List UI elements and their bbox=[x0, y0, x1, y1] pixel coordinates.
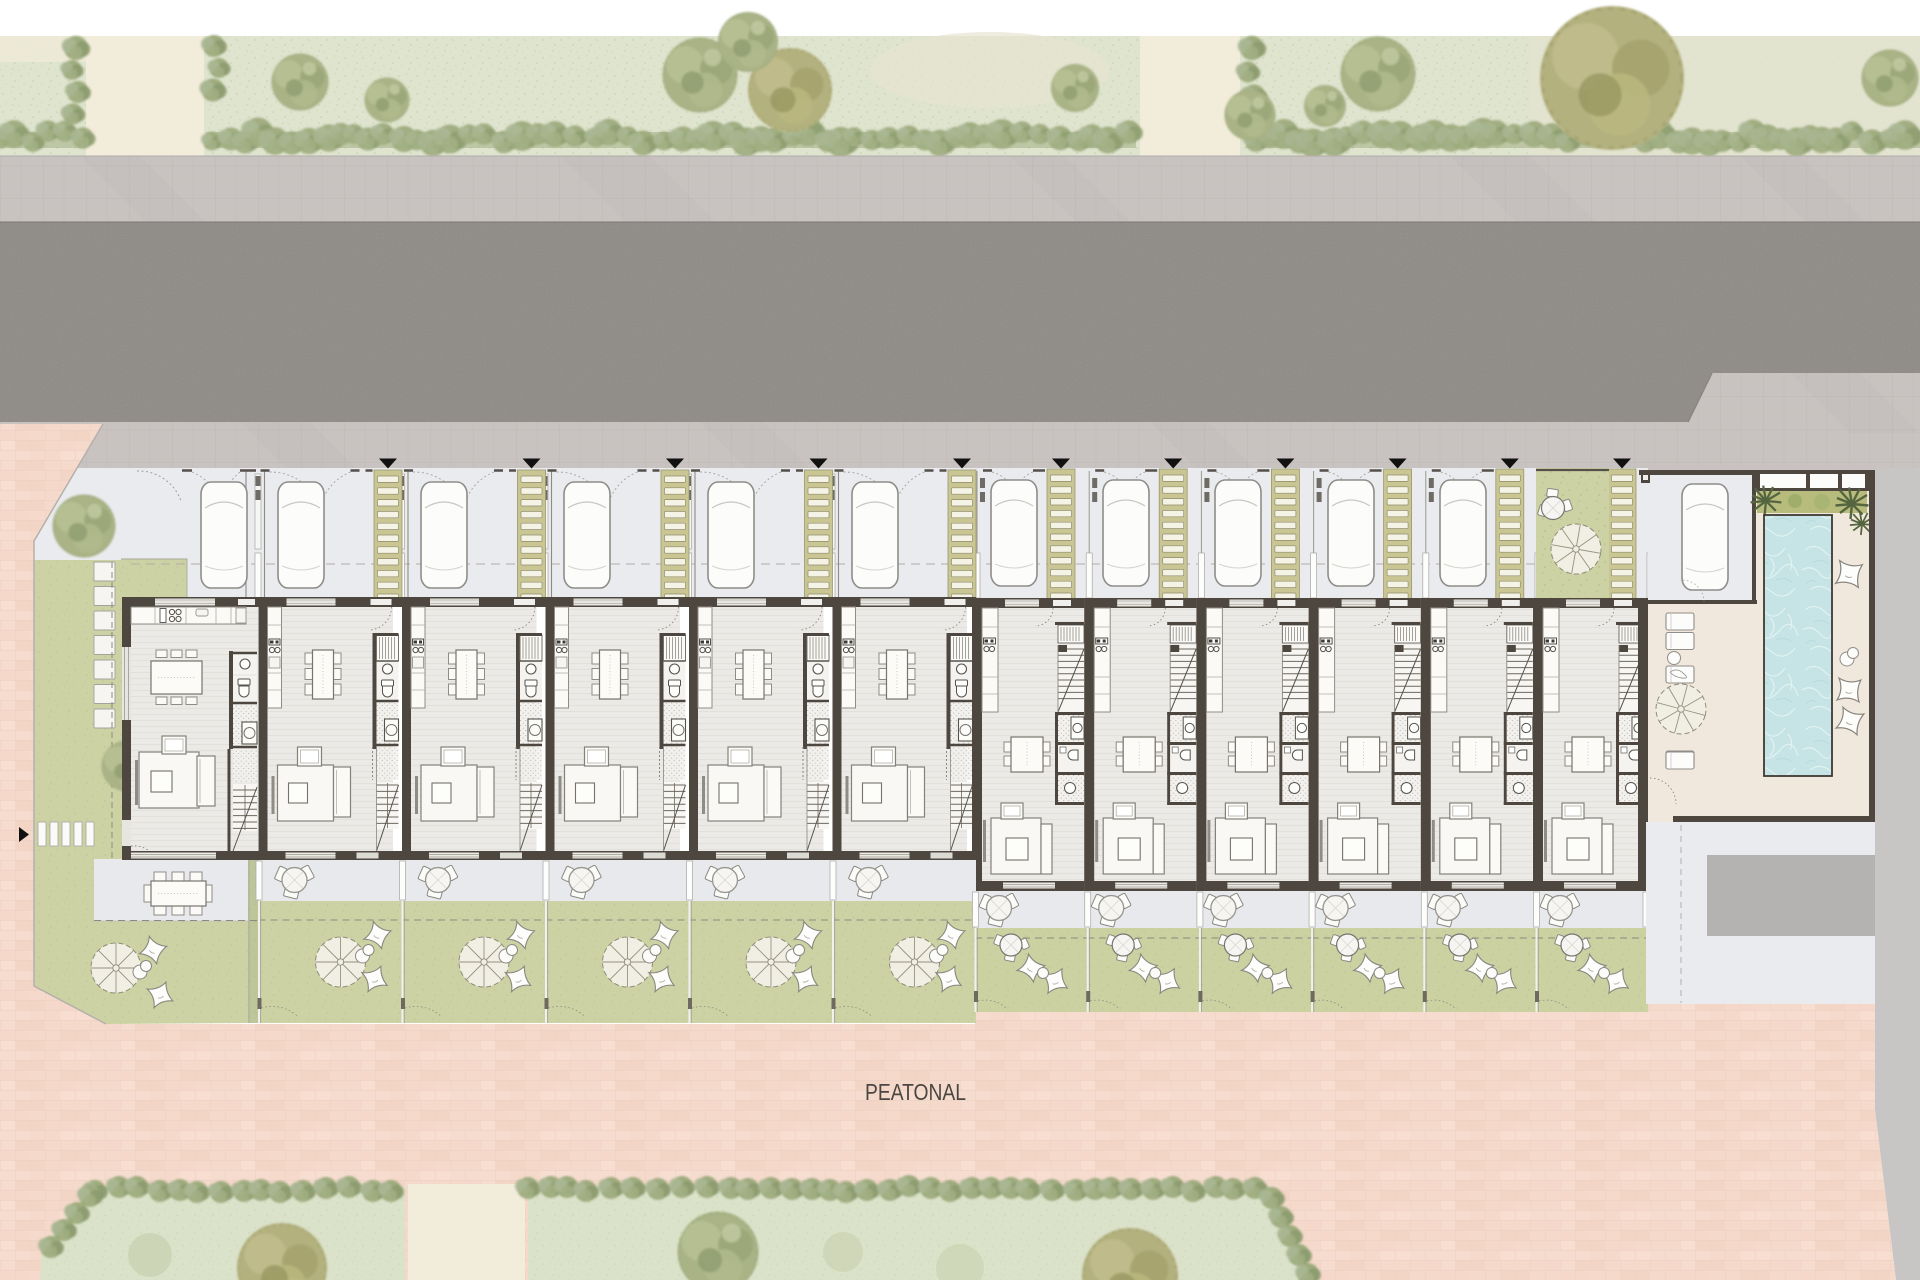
svg-text:PEATONAL: PEATONAL bbox=[865, 1079, 966, 1105]
